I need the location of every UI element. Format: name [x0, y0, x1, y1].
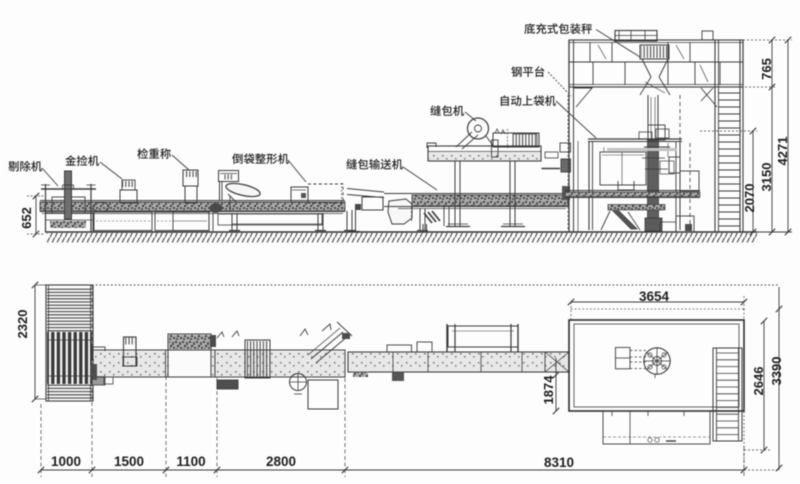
svg-text:2800: 2800	[266, 454, 296, 469]
svg-text:3654: 3654	[639, 289, 670, 304]
svg-text:1874: 1874	[541, 375, 556, 405]
svg-text:765: 765	[759, 58, 774, 80]
svg-text:652: 652	[19, 207, 34, 229]
svg-text:4271: 4271	[775, 137, 790, 166]
svg-text:1000: 1000	[51, 454, 81, 469]
svg-text:1100: 1100	[176, 454, 205, 469]
svg-text:3390: 3390	[769, 357, 784, 386]
svg-text:1500: 1500	[114, 454, 144, 469]
svg-text:8310: 8310	[544, 455, 574, 470]
svg-text:3150: 3150	[759, 163, 774, 192]
svg-text:2070: 2070	[742, 184, 757, 213]
svg-text:2646: 2646	[751, 367, 766, 396]
svg-text:2320: 2320	[15, 310, 30, 339]
